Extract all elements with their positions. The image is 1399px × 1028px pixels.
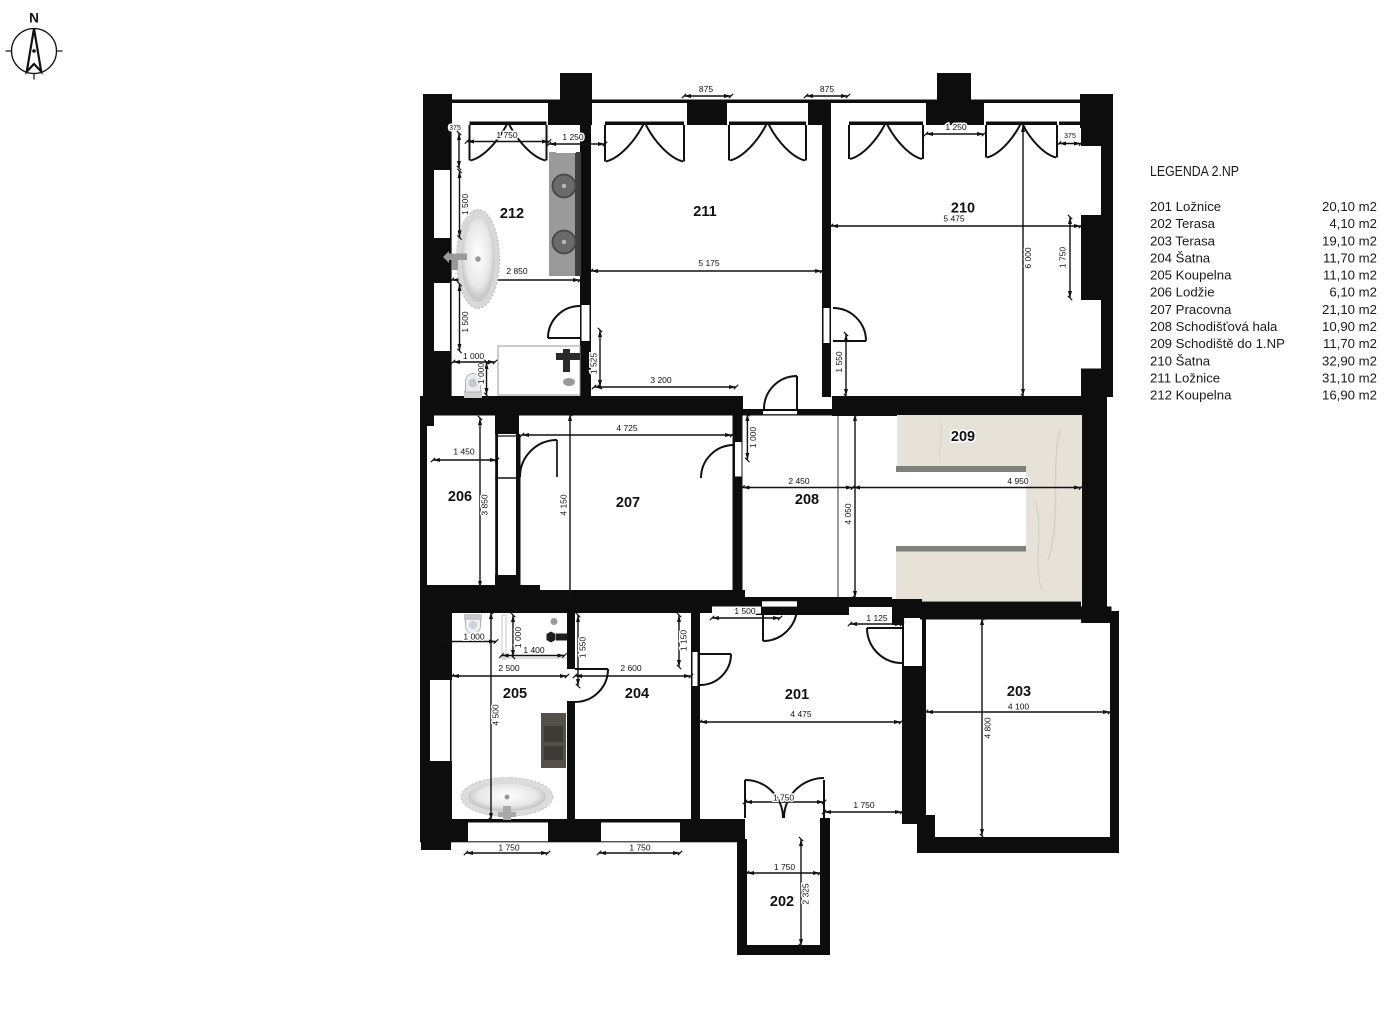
svg-text:206: 206 xyxy=(448,489,472,505)
svg-text:875: 875 xyxy=(820,84,834,94)
svg-text:6 000: 6 000 xyxy=(1023,247,1033,269)
svg-text:212 Koupelna: 212 Koupelna xyxy=(1150,388,1232,403)
svg-text:201 Ložnice: 201 Ložnice xyxy=(1150,199,1221,214)
svg-text:5 175: 5 175 xyxy=(698,258,720,268)
svg-text:2 500: 2 500 xyxy=(498,663,520,673)
svg-text:205: 205 xyxy=(503,686,527,702)
svg-text:1 750: 1 750 xyxy=(853,800,875,810)
svg-text:31,10 m2: 31,10 m2 xyxy=(1322,370,1377,385)
svg-text:210: 210 xyxy=(951,200,975,216)
svg-text:2 325: 2 325 xyxy=(800,883,810,905)
svg-text:1 000: 1 000 xyxy=(748,427,758,449)
svg-text:2 850: 2 850 xyxy=(506,266,528,276)
svg-text:6,10 m2: 6,10 m2 xyxy=(1329,285,1377,300)
svg-text:32,90 m2: 32,90 m2 xyxy=(1322,353,1377,368)
svg-text:1 450: 1 450 xyxy=(453,446,475,456)
svg-text:2 600: 2 600 xyxy=(620,663,642,673)
svg-text:201: 201 xyxy=(785,687,809,703)
svg-text:375: 375 xyxy=(1064,133,1076,140)
svg-text:11,70 m2: 11,70 m2 xyxy=(1323,336,1377,351)
svg-text:204: 204 xyxy=(625,686,649,702)
svg-text:375: 375 xyxy=(449,125,461,132)
svg-text:210 Šatna: 210 Šatna xyxy=(1150,353,1211,368)
svg-text:1 250: 1 250 xyxy=(945,122,967,132)
svg-text:19,10 m2: 19,10 m2 xyxy=(1322,233,1377,248)
svg-text:202: 202 xyxy=(770,894,794,910)
svg-text:4 950: 4 950 xyxy=(1007,476,1029,486)
svg-text:209: 209 xyxy=(951,429,975,445)
svg-text:2 450: 2 450 xyxy=(788,476,810,486)
svg-text:1 000: 1 000 xyxy=(513,627,523,649)
svg-text:211 Ložnice: 211 Ložnice xyxy=(1150,370,1220,385)
svg-text:212: 212 xyxy=(500,206,524,222)
svg-text:1 125: 1 125 xyxy=(866,613,888,623)
svg-text:208 Schodišťová hala: 208 Schodišťová hala xyxy=(1150,319,1278,334)
svg-text:4 800: 4 800 xyxy=(982,717,992,739)
svg-text:1 750: 1 750 xyxy=(496,130,518,140)
svg-text:21,10 m2: 21,10 m2 xyxy=(1322,302,1377,317)
svg-text:20,10 m2: 20,10 m2 xyxy=(1322,199,1377,214)
svg-text:208: 208 xyxy=(795,492,819,508)
svg-text:1 000: 1 000 xyxy=(463,631,485,641)
svg-text:1 750: 1 750 xyxy=(498,842,520,852)
svg-text:4 050: 4 050 xyxy=(843,503,853,525)
svg-text:1 500: 1 500 xyxy=(460,194,470,216)
svg-text:1 000: 1 000 xyxy=(476,363,486,385)
svg-text:875: 875 xyxy=(699,84,713,94)
svg-text:1 750: 1 750 xyxy=(774,862,796,872)
svg-text:4 100: 4 100 xyxy=(1008,701,1030,711)
svg-text:206 Lodžie: 206 Lodžie xyxy=(1150,285,1215,300)
svg-text:1 000: 1 000 xyxy=(463,351,485,361)
svg-text:209 Schodiště do 1.NP: 209 Schodiště do 1.NP xyxy=(1150,336,1285,351)
svg-text:202 Terasa: 202 Terasa xyxy=(1150,216,1216,231)
svg-text:211: 211 xyxy=(693,204,716,220)
svg-text:4 725: 4 725 xyxy=(616,423,638,433)
svg-text:1 500: 1 500 xyxy=(460,311,470,333)
svg-text:1 550: 1 550 xyxy=(577,637,587,659)
svg-text:1 525: 1 525 xyxy=(588,353,598,375)
svg-text:4,10 m2: 4,10 m2 xyxy=(1329,216,1377,231)
svg-text:1 550: 1 550 xyxy=(834,351,844,373)
svg-text:1 750: 1 750 xyxy=(629,842,651,852)
svg-text:204 Šatna: 204 Šatna xyxy=(1150,250,1211,265)
svg-text:N: N xyxy=(29,11,39,26)
svg-text:1 400: 1 400 xyxy=(523,645,545,655)
svg-text:207 Pracovna: 207 Pracovna xyxy=(1150,302,1232,317)
svg-text:10,90 m2: 10,90 m2 xyxy=(1322,319,1377,334)
svg-text:LEGENDA 2.NP: LEGENDA 2.NP xyxy=(1150,163,1239,180)
svg-text:203 Terasa: 203 Terasa xyxy=(1150,233,1216,248)
svg-text:3 850: 3 850 xyxy=(479,494,489,516)
svg-text:4 475: 4 475 xyxy=(790,709,812,719)
svg-text:1 150: 1 150 xyxy=(678,630,688,652)
svg-text:11,70 m2: 11,70 m2 xyxy=(1323,250,1377,265)
svg-text:205 Koupelna: 205 Koupelna xyxy=(1150,268,1232,283)
svg-text:1 250: 1 250 xyxy=(562,132,584,142)
svg-text:1 750: 1 750 xyxy=(773,792,795,802)
svg-text:207: 207 xyxy=(616,495,640,511)
svg-text:1 750: 1 750 xyxy=(1057,247,1067,269)
svg-text:1 500: 1 500 xyxy=(734,606,756,616)
svg-text:11,10 m2: 11,10 m2 xyxy=(1323,268,1377,283)
svg-text:203: 203 xyxy=(1007,684,1031,700)
svg-text:4 500: 4 500 xyxy=(490,704,500,726)
svg-text:3 200: 3 200 xyxy=(650,375,672,385)
svg-text:4 150: 4 150 xyxy=(558,494,568,516)
svg-text:16,90 m2: 16,90 m2 xyxy=(1322,388,1377,403)
